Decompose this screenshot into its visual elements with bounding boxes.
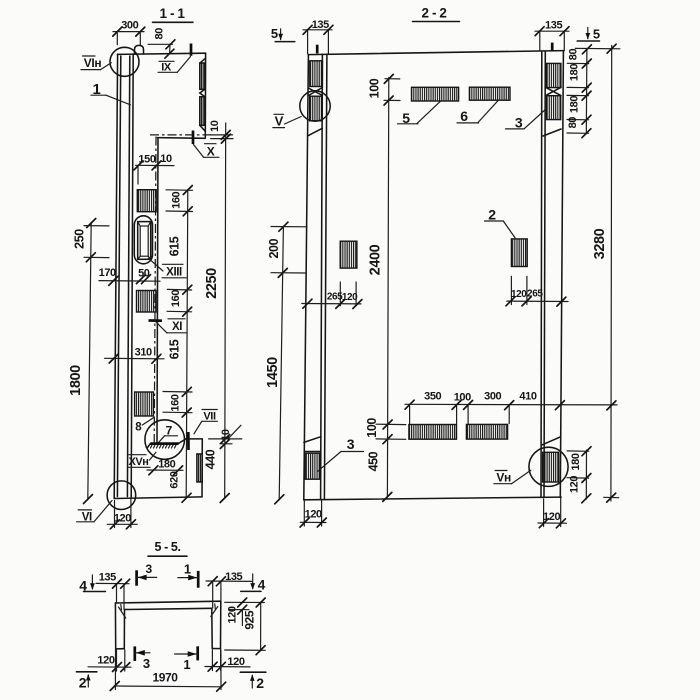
svg-text:300: 300 (484, 391, 501, 403)
svg-text:X: X (207, 145, 215, 159)
svg-text:100: 100 (365, 418, 379, 438)
svg-text:1970: 1970 (152, 670, 178, 684)
svg-text:160: 160 (170, 290, 182, 307)
svg-text:5: 5 (593, 26, 600, 41)
svg-text:410: 410 (519, 391, 536, 403)
svg-text:120: 120 (305, 508, 322, 520)
svg-text:120: 120 (227, 606, 239, 623)
svg-text:135: 135 (99, 572, 116, 584)
svg-text:3280: 3280 (592, 228, 608, 259)
svg-text:3: 3 (143, 656, 150, 671)
svg-text:XIII: XIII (166, 267, 182, 279)
svg-text:10: 10 (160, 153, 172, 165)
svg-text:10: 10 (209, 120, 221, 132)
svg-text:1450: 1450 (265, 357, 281, 388)
svg-text:450: 450 (367, 451, 381, 471)
svg-text:IX: IX (161, 62, 172, 74)
svg-text:135: 135 (225, 571, 242, 583)
svg-text:170: 170 (99, 267, 116, 279)
svg-text:2: 2 (79, 675, 87, 691)
svg-text:2250: 2250 (204, 268, 220, 299)
svg-text:440: 440 (203, 449, 217, 469)
svg-text:265: 265 (327, 292, 343, 303)
svg-text:80: 80 (567, 117, 579, 129)
svg-text:120: 120 (543, 511, 560, 523)
svg-text:VIн: VIн (84, 56, 102, 70)
svg-text:180: 180 (569, 96, 581, 113)
svg-text:200: 200 (267, 238, 281, 258)
svg-text:1: 1 (184, 562, 191, 577)
svg-text:3: 3 (146, 562, 153, 576)
svg-text:1800: 1800 (68, 365, 84, 396)
svg-text:V: V (275, 113, 284, 128)
svg-text:135: 135 (312, 19, 329, 31)
svg-text:120: 120 (511, 289, 527, 300)
svg-text:80: 80 (568, 49, 580, 61)
svg-text:120: 120 (342, 292, 358, 303)
svg-text:615: 615 (168, 339, 182, 359)
svg-text:2400: 2400 (368, 244, 384, 275)
svg-text:50: 50 (138, 268, 150, 280)
svg-text:5 - 5.: 5 - 5. (154, 540, 180, 554)
svg-text:1 - 1: 1 - 1 (159, 6, 185, 21)
svg-text:2: 2 (488, 207, 496, 223)
svg-text:3: 3 (515, 115, 523, 131)
svg-text:80: 80 (153, 28, 165, 40)
svg-text:3: 3 (347, 436, 355, 452)
svg-text:120: 120 (97, 655, 114, 667)
svg-text:2: 2 (256, 675, 264, 691)
svg-text:615: 615 (168, 236, 182, 256)
svg-text:150: 150 (138, 153, 155, 165)
svg-text:6: 6 (460, 108, 468, 124)
svg-text:5: 5 (271, 26, 278, 41)
svg-text:120: 120 (227, 656, 244, 668)
svg-text:120: 120 (114, 512, 131, 524)
svg-text:100: 100 (368, 78, 382, 98)
svg-text:1: 1 (183, 657, 190, 672)
svg-text:120: 120 (568, 476, 580, 493)
svg-text:135: 135 (545, 20, 562, 32)
svg-text:160: 160 (170, 394, 182, 411)
svg-text:160: 160 (171, 191, 183, 208)
svg-text:180: 180 (570, 453, 582, 470)
svg-text:Vн: Vн (496, 470, 511, 484)
svg-text:180: 180 (158, 459, 175, 471)
svg-text:265: 265 (527, 288, 543, 299)
svg-text:310: 310 (135, 347, 152, 359)
svg-text:100: 100 (454, 391, 471, 403)
svg-text:350: 350 (424, 391, 441, 403)
svg-text:XI: XI (172, 321, 182, 333)
svg-text:180: 180 (569, 64, 581, 81)
svg-text:8: 8 (135, 422, 142, 434)
svg-text:4: 4 (258, 578, 266, 593)
svg-text:XVн: XVн (128, 456, 148, 468)
svg-text:250: 250 (73, 229, 87, 249)
svg-text:10: 10 (220, 429, 232, 441)
svg-text:2 - 2: 2 - 2 (421, 6, 446, 21)
svg-text:925: 925 (243, 610, 257, 630)
svg-text:300: 300 (121, 20, 138, 32)
